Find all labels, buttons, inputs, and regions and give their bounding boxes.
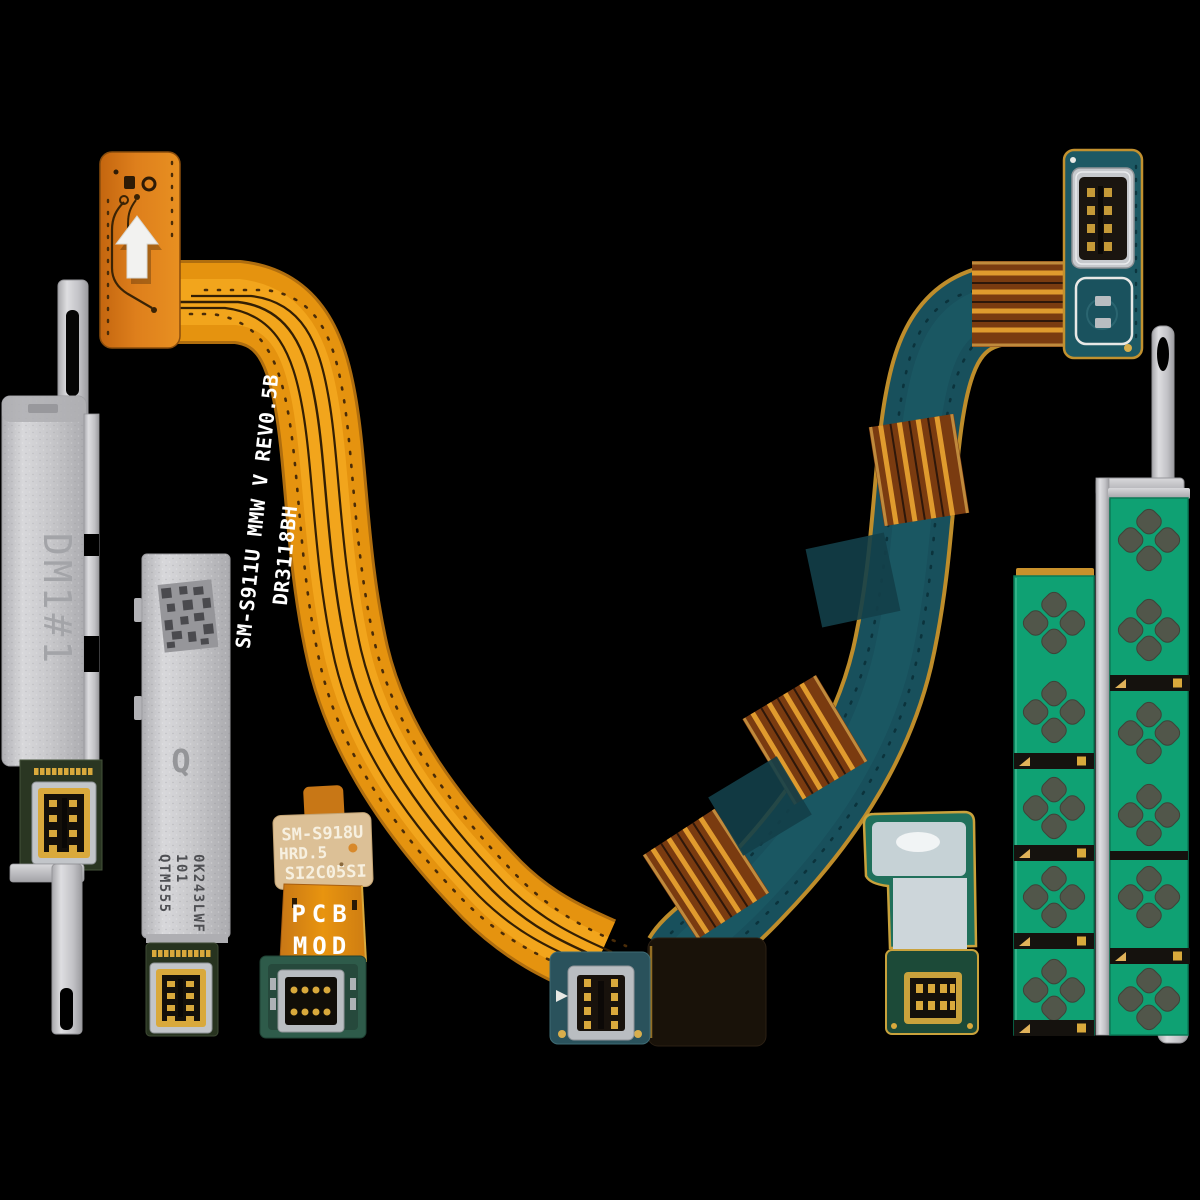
smd-component: [1095, 296, 1111, 306]
strip-separator: [1014, 845, 1094, 861]
bracket-rail: [84, 414, 99, 766]
metal-bracket-left: DM1#1: [2, 280, 102, 1034]
copper-section: [972, 261, 1072, 347]
smd-component: [270, 998, 276, 1010]
fiducial-mark: [352, 900, 357, 910]
smd-component: [270, 978, 276, 990]
pcb-mod-flex: SM-S918U HRD.5 SI2C05SI PCB MOD: [260, 785, 373, 1038]
label-sticker: SM-S918U HRD.5 SI2C05SI: [273, 812, 374, 889]
teal-flex-end-pad: [648, 938, 766, 1046]
module-marking-lot: 0K243LWF: [190, 854, 206, 933]
parts-illustration: SM-S911U MMW V REV0.5B DR3118BH DM1#1: [0, 0, 1200, 1200]
via-dot: [114, 170, 119, 175]
side-nub: [134, 696, 142, 720]
connector-cavity: [285, 977, 337, 1025]
flex-board-connector: [260, 956, 366, 1038]
sticker-line2: HRD.5: [279, 843, 328, 864]
q-logo: Q: [171, 742, 190, 780]
stamp-mark: [28, 404, 58, 413]
small-antenna-flex: [864, 812, 978, 1034]
strip-separator: [1014, 1020, 1094, 1036]
strip-separator: [1110, 675, 1190, 691]
module-ledge: [146, 934, 228, 943]
bracket-marking: DM1#1: [35, 533, 79, 667]
rail-cutout: [84, 534, 99, 556]
side-nub: [134, 598, 142, 622]
sticker-line1: SM-S918U: [281, 823, 364, 846]
module-marking-rev: 101: [173, 854, 189, 884]
gold-pad-dot: [634, 1030, 642, 1038]
orange-flex-top-pad: [100, 152, 180, 348]
shield-sticker-lower: [893, 878, 967, 950]
board-connector: [1072, 168, 1134, 268]
bracket-connector-section: [20, 760, 102, 870]
trace-terminal: [134, 194, 140, 200]
sticker-line3: SI2C05SI: [284, 861, 367, 884]
flex-connector-block: [886, 950, 978, 1034]
slot-hole: [66, 310, 79, 396]
copper-section: [869, 414, 970, 526]
strip-separator: [1110, 948, 1190, 964]
mounting-hole: [1157, 337, 1169, 371]
antenna-strip-right-column: [1108, 488, 1190, 1035]
gold-pad-dot: [558, 1030, 566, 1038]
datamatrix-code: [158, 579, 219, 652]
orange-flex-board-connector: [550, 952, 650, 1044]
module-marking-part: QTM555: [156, 854, 172, 914]
trace-terminal: [151, 307, 157, 313]
gold-pad-dot: [967, 1023, 973, 1029]
fiducial-dot: [1070, 157, 1076, 163]
smd-component: [350, 978, 356, 990]
bracket-rail: [1096, 478, 1109, 1035]
qtm-antenna-module: Q QTM555 101 0K243LWF: [134, 554, 230, 1036]
flex-marking-model: SM-S911U MMW V REV0.5B: [231, 373, 284, 650]
gold-pad-dot: [1124, 344, 1132, 352]
dark-shield-section: [806, 533, 901, 628]
slot-hole: [60, 988, 73, 1030]
antenna-strip-left-column: [1014, 568, 1094, 1036]
product-photo: SM-S911U MMW V REV0.5B DR3118BH DM1#1: [0, 0, 1200, 1200]
rail-cutout: [84, 636, 99, 672]
sticker-sheen: [896, 832, 940, 852]
component-window: [1076, 278, 1132, 344]
teal-flex-top-pad: [1064, 150, 1142, 358]
gold-pad-dot: [891, 1023, 897, 1029]
strip-separator: [1014, 753, 1094, 769]
smd-component: [350, 998, 356, 1010]
strip-separator-thin: [1110, 851, 1188, 860]
smd-component: [1095, 318, 1111, 328]
flex-marking-pcb: PCB: [291, 900, 352, 928]
module-connector-board: [146, 943, 218, 1036]
component-mark: [124, 176, 135, 189]
strip-separator: [1014, 933, 1094, 949]
